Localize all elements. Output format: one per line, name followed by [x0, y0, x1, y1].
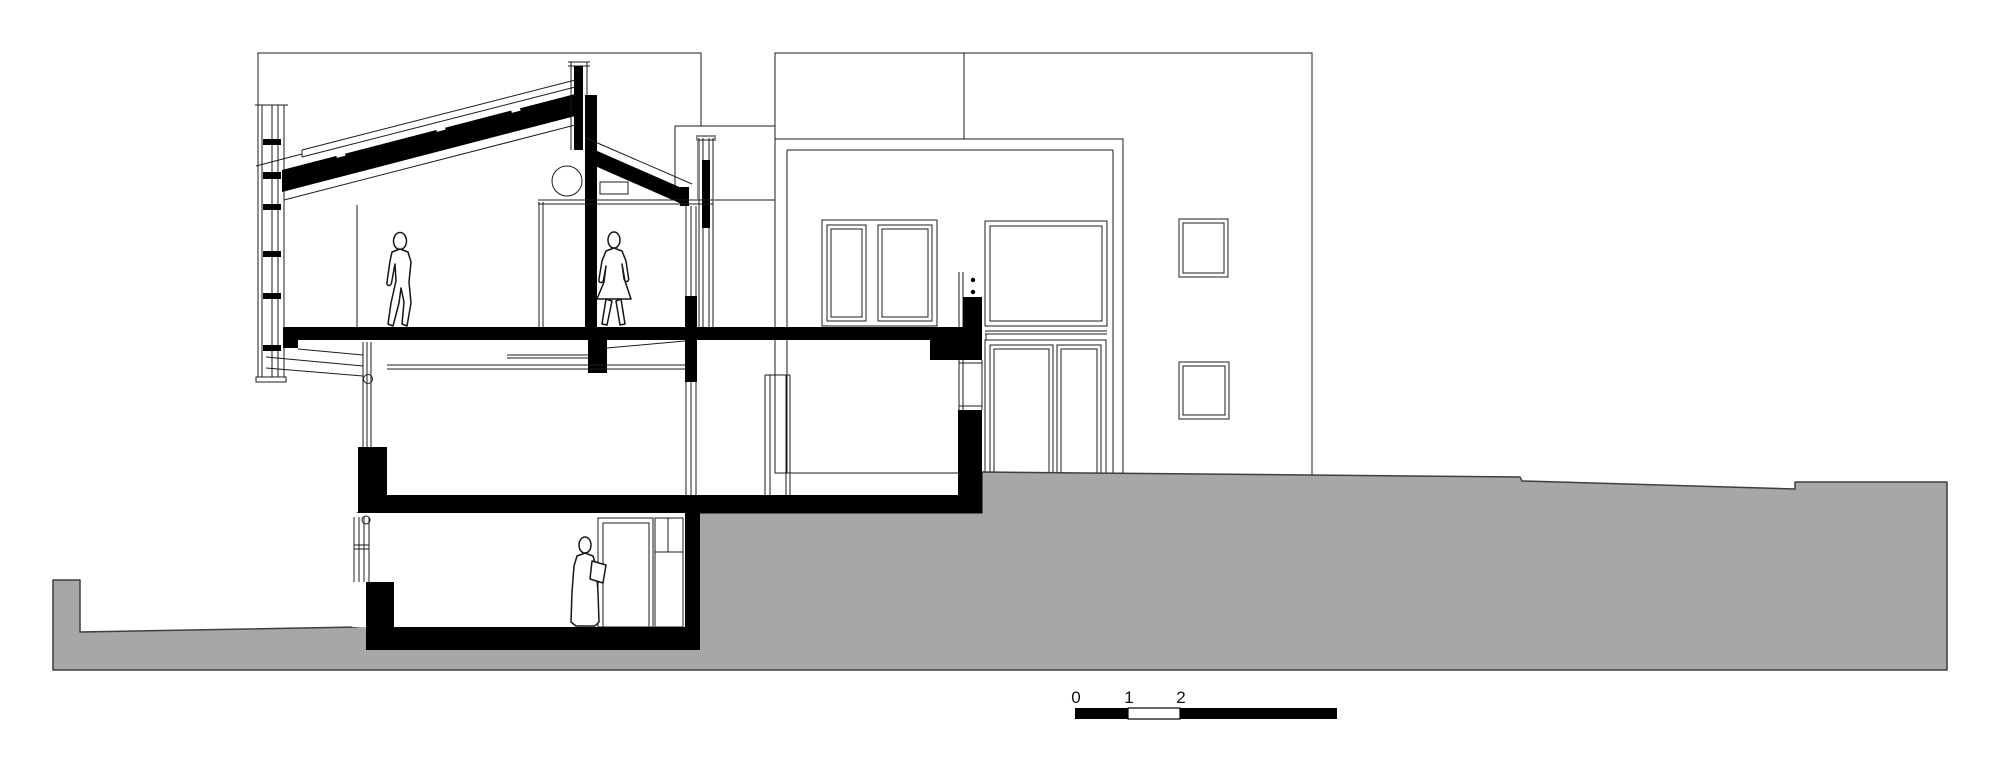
bg-entrance-door — [985, 340, 1106, 473]
window-transom — [263, 172, 281, 179]
bg-penthouse-box — [675, 126, 792, 200]
window-transom — [263, 139, 281, 145]
window-transom — [263, 345, 281, 351]
figure-walking-person — [387, 233, 411, 327]
clerestory-glass-lines — [686, 206, 696, 296]
held-object — [590, 561, 606, 583]
basement — [352, 513, 700, 650]
window-transom — [263, 204, 281, 210]
equipment-box — [600, 182, 628, 194]
detail-dot — [971, 290, 975, 294]
scale-label-2: 2 — [1176, 688, 1185, 707]
basement-partition — [655, 518, 683, 627]
room-divider-wall — [539, 202, 543, 327]
scale-bar-segment-2-5 — [1180, 708, 1337, 719]
scale-label-1: 1 — [1124, 688, 1133, 707]
right-wall-poche — [685, 296, 697, 382]
scale-bar: 0 1 2 — [1071, 688, 1337, 719]
terrain — [53, 472, 1947, 670]
window-transom — [263, 293, 281, 299]
bg-square-window-upper — [1179, 219, 1228, 277]
terrain-profile — [53, 472, 1947, 670]
basement-back-wall-poche — [685, 513, 700, 650]
window-transom — [263, 251, 281, 257]
scale-label-0: 0 — [1071, 688, 1080, 707]
bg-window-pair — [822, 220, 937, 326]
scale-bar-segment-1-2 — [1128, 708, 1180, 719]
bg-square-window-lower — [1179, 362, 1229, 419]
background-buildings — [258, 53, 1312, 476]
basement-door-leaf — [603, 523, 649, 627]
middle-left-window — [363, 342, 371, 447]
architectural-section-sheet: 0 1 2 — [0, 0, 2000, 772]
middle-right-glass — [686, 382, 696, 495]
dropped-beam — [588, 340, 607, 373]
bg-large-window — [985, 221, 1107, 326]
detail-dot — [971, 278, 975, 282]
middle-ceiling-lines — [387, 341, 685, 369]
figure-standing-person — [597, 232, 631, 325]
clerestory-mullion — [696, 136, 716, 327]
middle-floor-slab — [373, 495, 982, 513]
scale-bar-segment-0-1 — [1075, 708, 1128, 719]
basement-floor-slab — [373, 627, 687, 650]
section-drawing: 0 1 2 — [0, 0, 2000, 772]
ridge-wall-poche — [585, 95, 597, 327]
